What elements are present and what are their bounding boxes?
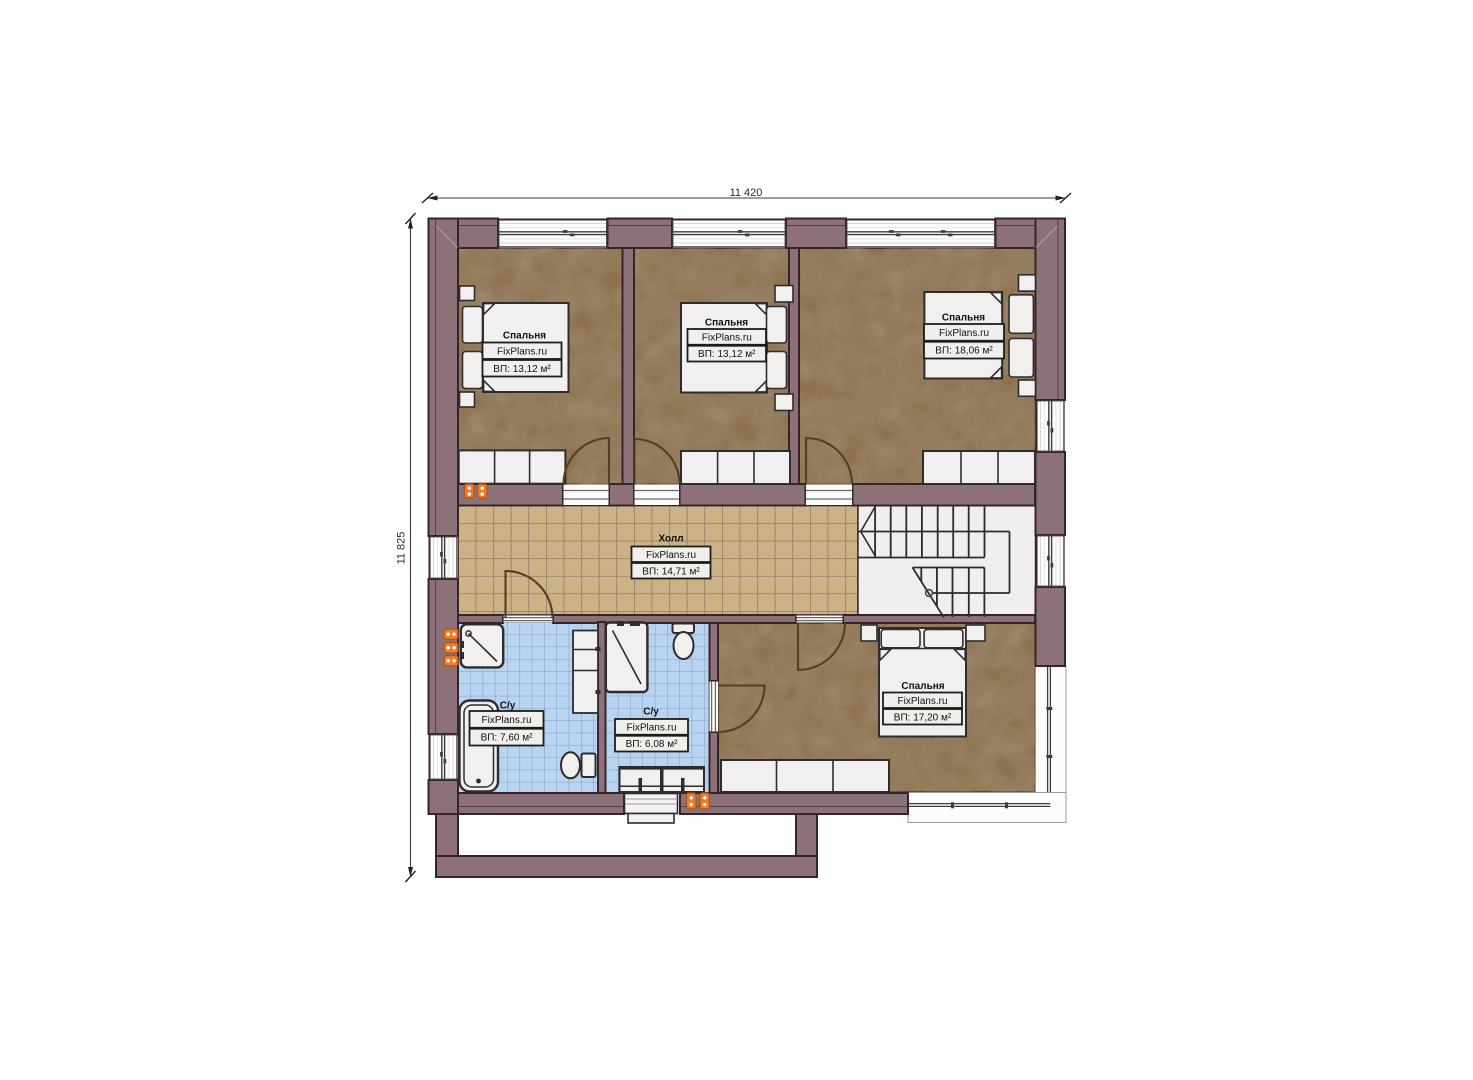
- svg-text:FixPlans.ru: FixPlans.ru: [626, 723, 676, 734]
- svg-text:Спальня: Спальня: [503, 331, 546, 342]
- svg-text:С/у: С/у: [500, 701, 516, 712]
- svg-text:ВП: 7,60 м²: ВП: 7,60 м²: [481, 733, 534, 744]
- svg-text:FixPlans.ru: FixPlans.ru: [497, 347, 547, 358]
- svg-text:ВП: 14,71 м²: ВП: 14,71 м²: [642, 566, 700, 577]
- svg-text:ВП: 13,12 м²: ВП: 13,12 м²: [493, 364, 551, 375]
- svg-text:Спальня: Спальня: [705, 318, 748, 329]
- svg-text:ВП: 17,20 м²: ВП: 17,20 м²: [894, 712, 952, 723]
- svg-text:FixPlans.ru: FixPlans.ru: [646, 550, 696, 561]
- svg-text:FixPlans.ru: FixPlans.ru: [897, 696, 947, 707]
- svg-text:11 420: 11 420: [730, 187, 763, 199]
- svg-text:ВП: 18,06 м²: ВП: 18,06 м²: [935, 346, 993, 357]
- svg-text:11 825: 11 825: [396, 532, 408, 565]
- svg-text:FixPlans.ru: FixPlans.ru: [702, 333, 752, 344]
- svg-text:Холл: Холл: [658, 534, 683, 545]
- svg-text:FixPlans.ru: FixPlans.ru: [481, 715, 531, 726]
- svg-text:С/у: С/у: [643, 707, 659, 718]
- svg-text:ВП: 6,08 м²: ВП: 6,08 м²: [626, 739, 679, 750]
- svg-text:Спальня: Спальня: [942, 313, 985, 324]
- svg-text:ВП: 13,12 м²: ВП: 13,12 м²: [698, 349, 756, 360]
- svg-text:FixPlans.ru: FixPlans.ru: [939, 328, 989, 339]
- svg-text:Спальня: Спальня: [901, 681, 944, 692]
